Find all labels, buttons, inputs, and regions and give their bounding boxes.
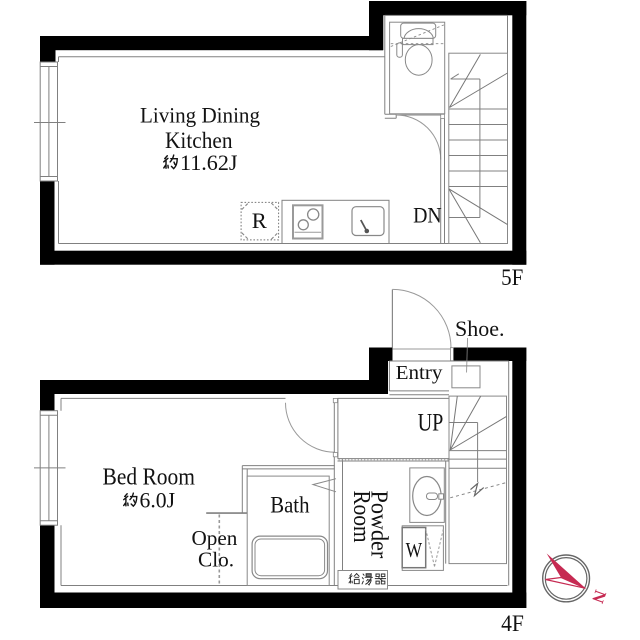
svg-text:Shoe.: Shoe. (455, 316, 505, 341)
svg-text:Room: Room (348, 491, 374, 543)
svg-text:Living Dining: Living Dining (140, 103, 260, 128)
svg-text:Clo.: Clo. (198, 548, 234, 572)
svg-text:Bath: Bath (270, 493, 310, 518)
svg-text:4F: 4F (501, 611, 524, 636)
svg-text:DN: DN (413, 203, 442, 228)
svg-text:W: W (406, 538, 423, 562)
svg-text:6.0J: 6.0J (140, 488, 176, 513)
svg-text:5F: 5F (501, 265, 523, 290)
svg-text:Open: Open (192, 526, 238, 550)
svg-text:11.62J: 11.62J (180, 150, 238, 175)
svg-text:R: R (252, 208, 267, 233)
svg-text:UP: UP (418, 410, 444, 437)
svg-text:Entry: Entry (396, 362, 444, 384)
